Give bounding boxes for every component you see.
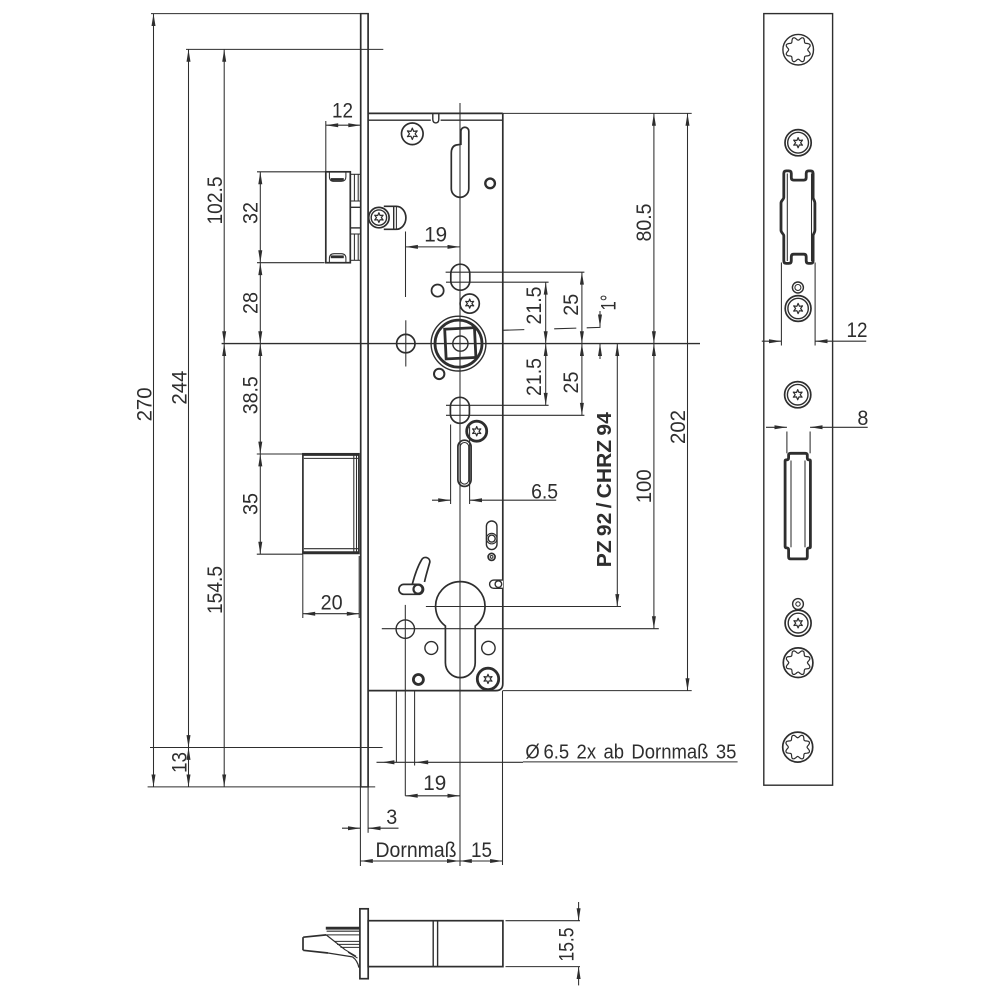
svg-text:25: 25 xyxy=(559,294,583,316)
svg-text:202: 202 xyxy=(666,410,690,444)
svg-text:Dornmaß: Dornmaß xyxy=(376,838,457,862)
svg-text:154.5: 154.5 xyxy=(203,566,227,614)
svg-text:21.5: 21.5 xyxy=(522,286,546,324)
svg-text:19: 19 xyxy=(423,771,446,795)
svg-text:12: 12 xyxy=(847,318,868,342)
svg-text:8: 8 xyxy=(857,406,868,430)
svg-text:102.5: 102.5 xyxy=(203,176,227,224)
svg-text:12: 12 xyxy=(332,99,353,123)
svg-text:244: 244 xyxy=(167,371,191,405)
svg-text:13: 13 xyxy=(167,752,191,773)
svg-text:35: 35 xyxy=(239,493,263,515)
svg-text:19: 19 xyxy=(424,222,447,246)
svg-text:3: 3 xyxy=(386,805,397,829)
svg-text:32: 32 xyxy=(239,202,263,224)
svg-text:80.5: 80.5 xyxy=(632,203,656,241)
svg-text:38.5: 38.5 xyxy=(239,376,263,414)
svg-text:15.5: 15.5 xyxy=(554,927,578,961)
svg-text:20: 20 xyxy=(321,590,343,614)
svg-text:Ø 6.5 2x ab Dornmaß 35: Ø 6.5 2x ab Dornmaß 35 xyxy=(525,740,736,763)
svg-text:21.5: 21.5 xyxy=(522,358,546,396)
svg-text:1°: 1° xyxy=(596,295,620,311)
svg-text:PZ 92 / CHRZ 94: PZ 92 / CHRZ 94 xyxy=(594,411,616,567)
svg-text:25: 25 xyxy=(559,371,583,393)
svg-text:15: 15 xyxy=(471,838,492,862)
svg-text:6.5: 6.5 xyxy=(531,479,558,503)
svg-text:270: 270 xyxy=(132,387,156,421)
svg-text:28: 28 xyxy=(239,292,263,314)
svg-text:100: 100 xyxy=(632,469,656,503)
